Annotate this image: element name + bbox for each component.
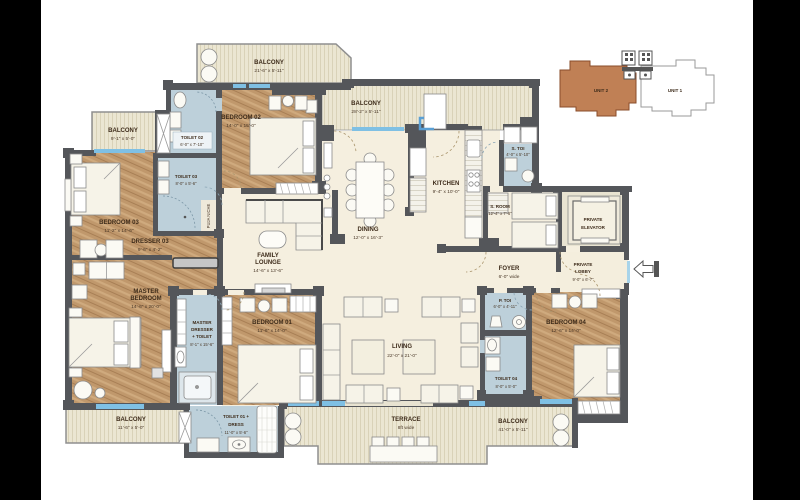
svg-text:BEDROOM 02: BEDROOM 02 (221, 115, 261, 121)
svg-text:11'-2" x 14'-6": 11'-2" x 14'-6" (104, 228, 133, 234)
svg-text:LIVING: LIVING (392, 344, 412, 350)
svg-text:MASTER: MASTER (133, 289, 159, 295)
svg-text:6'-0" x 7'-10": 6'-0" x 7'-10" (180, 142, 204, 147)
svg-text:12'-0" x 16'-3": 12'-0" x 16'-3" (353, 235, 383, 241)
svg-text:BEDROOM: BEDROOM (130, 296, 161, 302)
svg-text:9'-0" x 6'-7": 9'-0" x 6'-7" (572, 277, 594, 282)
svg-text:PUJA NICHE: PUJA NICHE (206, 203, 211, 228)
svg-text:TOILET 04: TOILET 04 (495, 376, 518, 381)
svg-text:TOILET 01 +: TOILET 01 + (223, 414, 249, 419)
svg-text:BALCONY: BALCONY (108, 128, 138, 134)
svg-text:14'-0" x 15'-0": 14'-0" x 15'-0" (226, 123, 256, 129)
svg-text:12'-6" x 14'-0": 12'-6" x 14'-0" (551, 328, 581, 334)
svg-text:41'-0" x 5'-11": 41'-0" x 5'-11" (498, 427, 527, 433)
svg-text:4'-0" x 5'-10": 4'-0" x 5'-10" (506, 152, 530, 157)
svg-text:FAMILY: FAMILY (257, 253, 278, 259)
svg-text:+ TOILET: + TOILET (192, 334, 212, 339)
svg-text:12'-4" x 7'-6": 12'-4" x 7'-6" (488, 211, 512, 216)
svg-text:11'-0" x 5'-6": 11'-0" x 5'-6" (224, 430, 248, 435)
svg-text:9'-4" x 10'-0": 9'-4" x 10'-0" (433, 189, 460, 195)
svg-text:PRIVATE: PRIVATE (574, 262, 593, 267)
svg-text:9'-1" x 5'-0": 9'-1" x 5'-0" (111, 136, 135, 142)
svg-text:9'-6" x 4'-2": 9'-6" x 4'-2" (138, 247, 162, 253)
svg-text:BEDROOM 01: BEDROOM 01 (252, 320, 292, 326)
svg-text:FOYER: FOYER (499, 266, 520, 272)
svg-text:BEDROOM 03: BEDROOM 03 (99, 220, 139, 226)
svg-text:11'-6" x 5'-0": 11'-6" x 5'-0" (118, 425, 145, 431)
svg-text:BALCONY: BALCONY (351, 101, 381, 107)
svg-text:14'-6" x 20'-0": 14'-6" x 20'-0" (131, 304, 161, 310)
svg-text:P. TOI: P. TOI (499, 298, 511, 303)
svg-text:8'-0" x 5'-6": 8'-0" x 5'-6" (175, 181, 197, 186)
svg-text:BEDROOM 04: BEDROOM 04 (546, 320, 586, 326)
svg-text:LOBBY: LOBBY (575, 269, 591, 274)
svg-text:6'-0" x 4'-11": 6'-0" x 4'-11" (493, 304, 517, 309)
svg-text:6'-0" wide: 6'-0" wide (499, 274, 520, 280)
svg-text:S. TOI: S. TOI (512, 146, 525, 151)
svg-text:UNIT 2: UNIT 2 (594, 88, 609, 93)
svg-text:22'-0" x 21'-0": 22'-0" x 21'-0" (387, 353, 417, 359)
svg-text:DRESSER 03: DRESSER 03 (131, 239, 169, 245)
svg-text:KITCHEN: KITCHEN (433, 181, 460, 187)
svg-text:14'-6" x 13'-6": 14'-6" x 13'-6" (253, 268, 283, 274)
svg-text:TERRACE: TERRACE (391, 417, 420, 423)
svg-text:DRESS: DRESS (228, 422, 244, 427)
svg-text:LOUNGE: LOUNGE (255, 260, 281, 266)
svg-text:UNIT 1: UNIT 1 (668, 88, 683, 93)
svg-text:PRIVATE: PRIVATE (584, 217, 603, 222)
svg-text:21'-6" x 5'-11": 21'-6" x 5'-11" (254, 68, 283, 74)
svg-text:28'-2" x 5'-11": 28'-2" x 5'-11" (351, 109, 380, 115)
svg-text:11'-6" x 14'-0": 11'-6" x 14'-0" (257, 328, 286, 334)
svg-text:BALCONY: BALCONY (116, 417, 146, 423)
svg-text:MASTER: MASTER (193, 320, 213, 325)
svg-text:S. ROOM: S. ROOM (490, 204, 510, 209)
svg-text:8'-0" x 5'-0": 8'-0" x 5'-0" (495, 384, 517, 389)
svg-text:TOILET 03: TOILET 03 (175, 174, 198, 179)
svg-text:8'-1" x 15'-6": 8'-1" x 15'-6" (190, 342, 214, 347)
svg-text:BALCONY: BALCONY (254, 60, 284, 66)
svg-text:BALCONY: BALCONY (498, 419, 528, 425)
svg-text:DRESSER: DRESSER (191, 327, 214, 332)
svg-text:ELEVATOR: ELEVATOR (581, 225, 606, 230)
svg-text:DINING: DINING (358, 227, 379, 233)
svg-text:8ft wide: 8ft wide (398, 425, 415, 431)
svg-text:TOILET 02: TOILET 02 (181, 135, 204, 140)
